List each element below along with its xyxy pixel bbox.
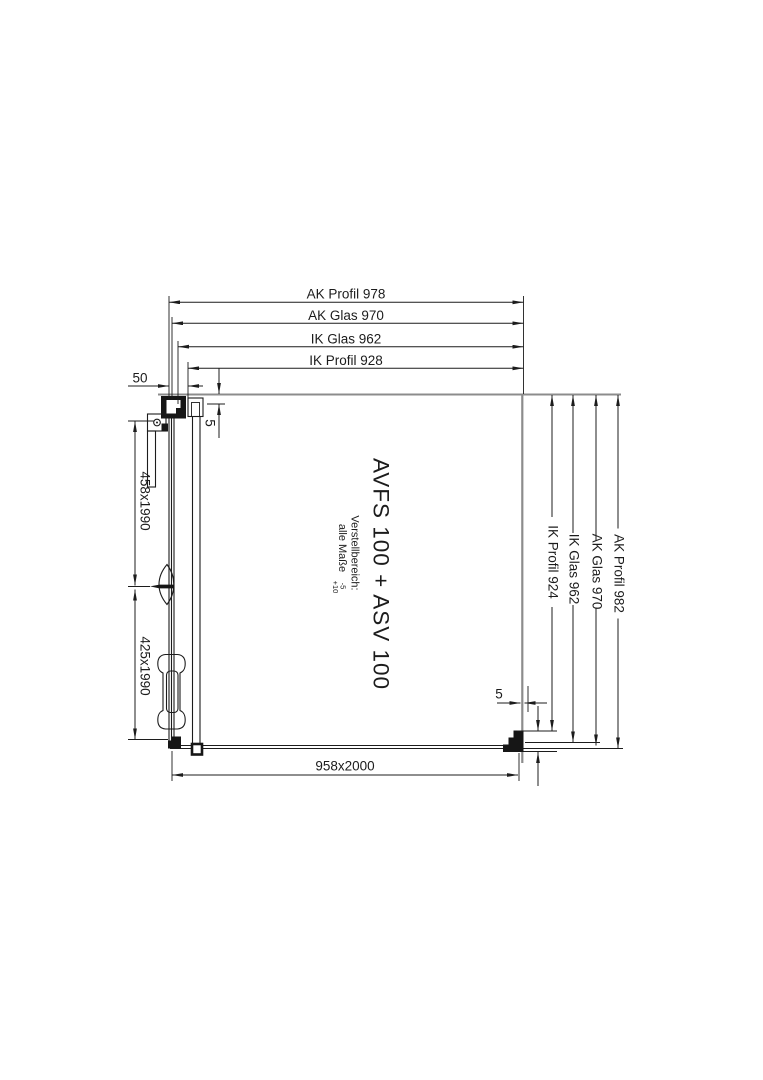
- dim-text-ak-profil-982: AK Profil 982: [612, 534, 627, 613]
- note-line-2: alle Maße: [336, 524, 348, 572]
- drawing-canvas: AK Profil 978 AK Glas 970 IK Glas 962 IK…: [0, 0, 763, 1080]
- dim-text-ak-glas-970-v: AK Glas 970: [590, 534, 605, 610]
- dim-text-ak-glas-970: AK Glas 970: [308, 308, 384, 323]
- corner-profile-tab: [176, 408, 186, 414]
- dim-text-50: 50: [132, 371, 147, 386]
- dim-text-ik-glas-962: IK Glas 962: [311, 332, 382, 347]
- technical-drawing-page: AK Profil 978 AK Glas 970 IK Glas 962 IK…: [0, 0, 763, 1080]
- seal-profile-bottom-block: [192, 744, 202, 755]
- dim-text-958x2000: 958x2000: [315, 759, 374, 774]
- dim-text-ak-profil-978: AK Profil 978: [307, 287, 386, 302]
- note-tolerance-lower: +10: [331, 581, 340, 594]
- dim-text-ik-profil-924: IK Profil 924: [546, 525, 561, 599]
- pivot-block: [162, 424, 169, 432]
- dim-text-5-bottom: 5: [495, 687, 503, 702]
- dim-text-5-top: 5: [203, 419, 218, 427]
- dim-text-458x1990: 458x1990: [138, 471, 153, 530]
- dim-text-ik-glas-962-v: IK Glas 962: [567, 534, 582, 605]
- dim-text-ik-profil-928: IK Profil 928: [309, 353, 383, 368]
- product-label: AVFS 100 + ASV 100: [369, 458, 394, 690]
- note-line-1: Verstellbereich:: [349, 515, 361, 590]
- dim-text-425x1990: 425x1990: [138, 636, 153, 695]
- pivot-pin-center: [156, 422, 158, 424]
